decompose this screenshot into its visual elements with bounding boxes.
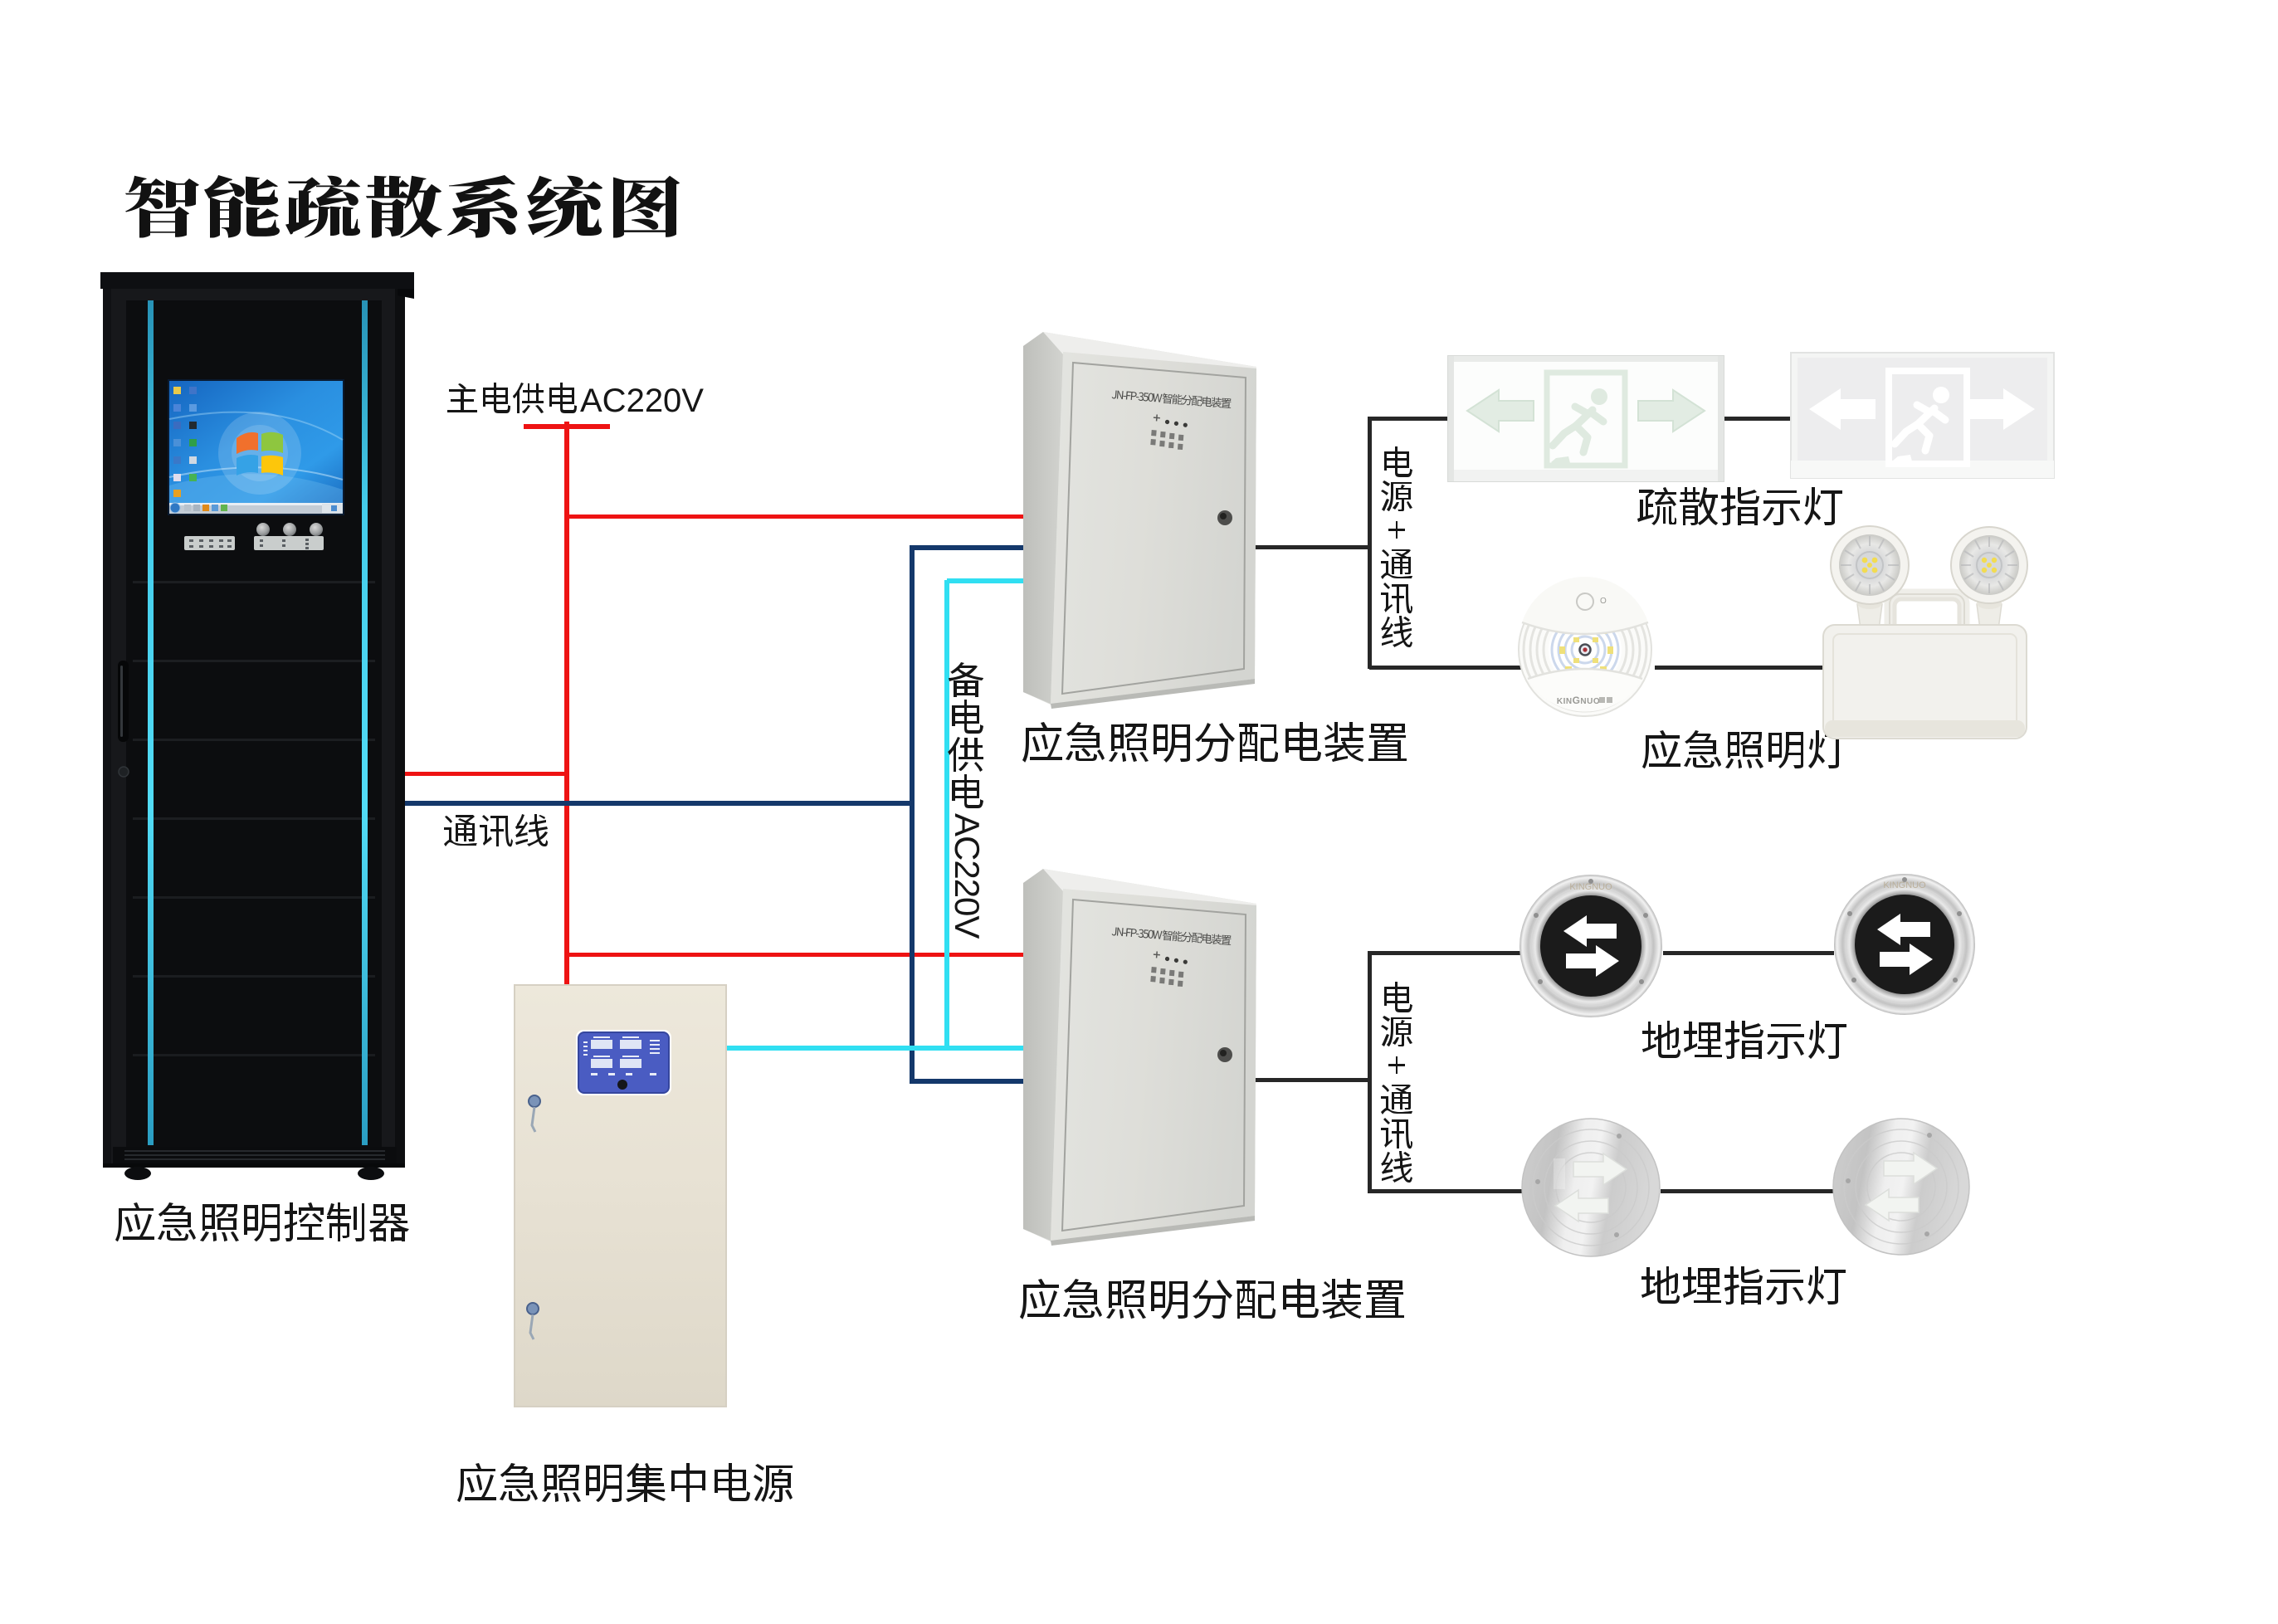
svg-text:AC220V: AC220V	[948, 813, 987, 939]
svg-text:KINGNUO: KINGNUO	[1569, 882, 1612, 892]
svg-text:O: O	[1600, 597, 1607, 606]
svg-text:KINGNUO: KINGNUO	[1557, 695, 1600, 706]
svg-text:AC220V: AC220V	[580, 383, 704, 419]
svg-text:KINGNUO: KINGNUO	[1883, 880, 1926, 890]
